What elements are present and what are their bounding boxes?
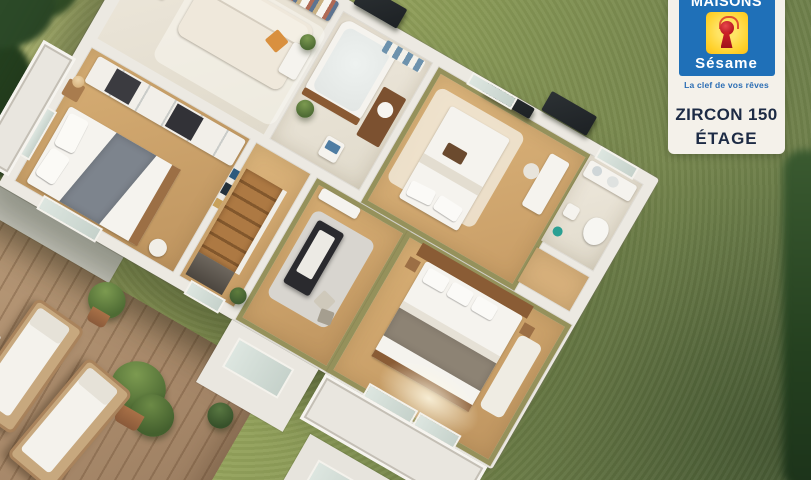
brand-name-top: MAISONS [679, 0, 775, 10]
keyhole-stem [721, 32, 733, 48]
hedge-right-edge [783, 150, 811, 480]
brand-card: MAISONS Sésame La clef de vos rêves ZIRC… [668, 0, 785, 154]
brand-name-bottom: Sésame [679, 55, 775, 72]
maisons-sesame-logo: MAISONS Sésame [679, 0, 775, 76]
floor-label: ÉTAGE [668, 129, 785, 149]
keyhole-icon [706, 12, 748, 54]
floor-plan-render: MAISONS Sésame La clef de vos rêves ZIRC… [0, 0, 811, 480]
model-name: ZIRCON 150 [668, 105, 785, 125]
brand-tagline: La clef de vos rêves [668, 80, 785, 90]
